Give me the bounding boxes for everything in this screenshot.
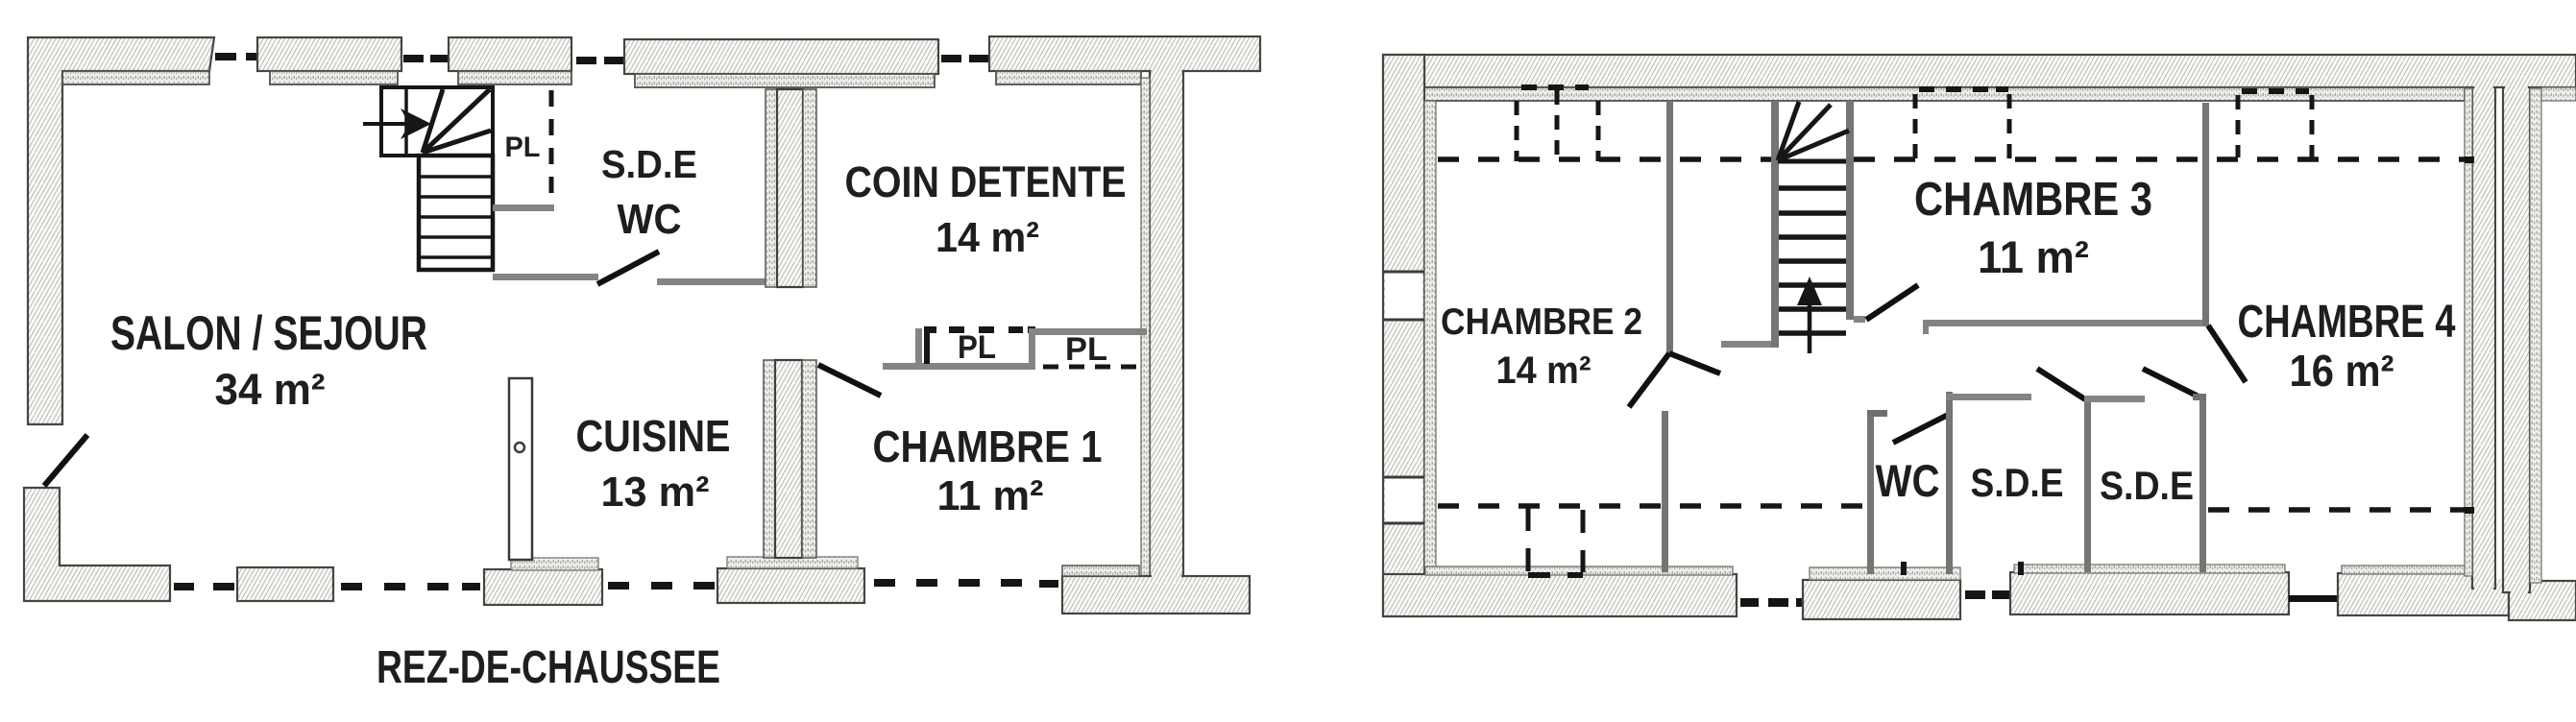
svg-text:11 m²: 11 m²	[1978, 231, 2089, 282]
svg-text:PL: PL	[1065, 331, 1107, 368]
svg-text:COIN DETENTE: COIN DETENTE	[845, 157, 1127, 206]
svg-text:16 m²: 16 m²	[2290, 346, 2394, 396]
svg-text:S.D.E: S.D.E	[2100, 463, 2194, 508]
svg-text:11 m²: 11 m²	[937, 472, 1044, 519]
svg-text:PL: PL	[505, 132, 541, 163]
svg-text:S.D.E: S.D.E	[1971, 460, 2064, 505]
svg-text:SALON / SEJOUR: SALON / SEJOUR	[110, 306, 427, 360]
svg-text:WC: WC	[1876, 455, 1940, 506]
svg-text:14 m²: 14 m²	[1496, 349, 1592, 392]
svg-text:34 m²: 34 m²	[215, 365, 326, 414]
svg-text:CHAMBRE 4: CHAMBRE 4	[2238, 297, 2456, 348]
svg-text:CHAMBRE 3: CHAMBRE 3	[1914, 174, 2152, 226]
svg-text:S.D.E: S.D.E	[601, 142, 697, 186]
svg-text:PL: PL	[958, 329, 996, 366]
svg-text:13 m²: 13 m²	[601, 469, 710, 516]
svg-text:14 m²: 14 m²	[936, 214, 1039, 261]
svg-text:CHAMBRE 1: CHAMBRE 1	[873, 421, 1103, 471]
svg-text:REZ-DE-CHAUSSEE: REZ-DE-CHAUSSEE	[377, 642, 720, 693]
svg-text:CHAMBRE 2: CHAMBRE 2	[1441, 301, 1642, 343]
svg-text:WC: WC	[618, 196, 682, 243]
svg-text:CUISINE: CUISINE	[576, 411, 731, 461]
